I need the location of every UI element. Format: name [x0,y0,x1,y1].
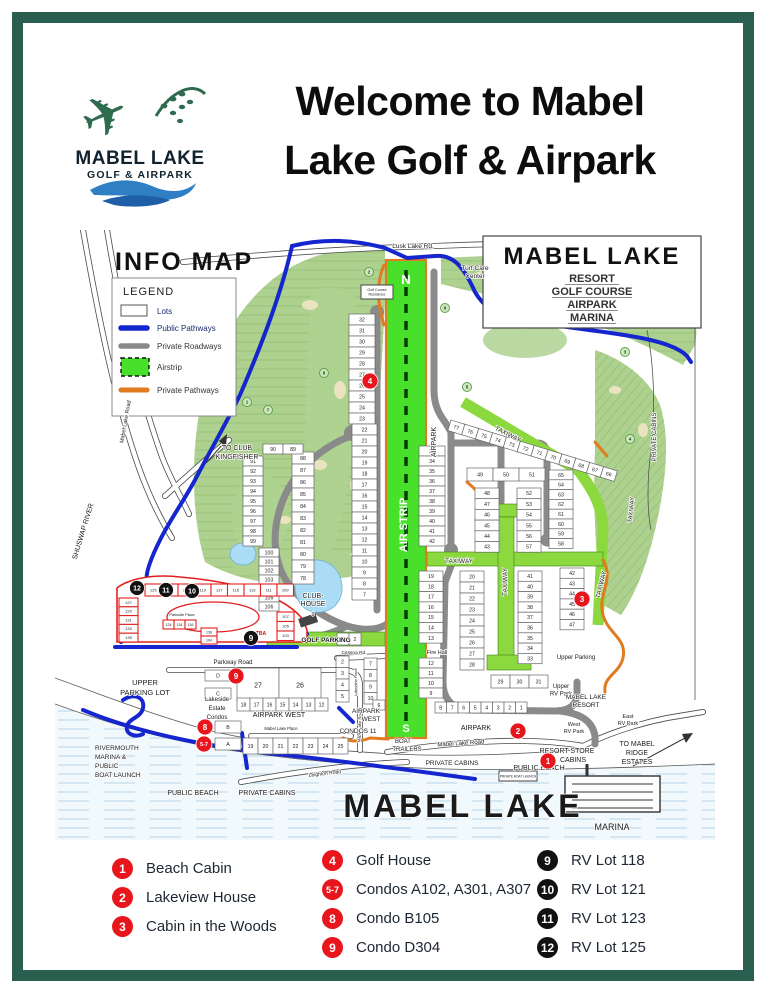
lot-number: 31 [359,328,365,334]
map-marker-number: 3 [580,595,585,604]
lot-number: 29 [498,679,504,685]
footer-legend-col-3: 9RV Lot 11810RV Lot 12111RV Lot 12312RV … [537,846,646,962]
lot-number: 124 [166,623,172,627]
legend-item: 1Beach Cabin [112,854,277,883]
lot-number: 28 [359,361,365,367]
lot-number: 20 [469,574,475,580]
map-label: TO CLUB [222,445,253,452]
lot-number: 59 [558,532,564,538]
map-label: PUBLIC BEACH [167,790,218,797]
lot-number: 57 [526,545,532,551]
map-label: AIRPARK [352,708,381,715]
legend-item-label: RV Lot 125 [571,939,646,956]
lot-number: 4 [485,705,488,711]
lot-number: 20 [263,744,269,750]
lot-number: 22 [362,427,368,433]
legend-item: 2Lakeview House [112,883,277,912]
info-map-title: INFO MAP [115,248,253,276]
page-title: Welcome to Mabel Lake Golf & Airpark [222,72,718,190]
legend-label: Lots [157,307,172,316]
footer-legend-col-1: 1Beach Cabin2Lakeview House3Cabin in the… [112,854,277,941]
lot-number: 93 [250,479,256,485]
legend-item-label: RV Lot 123 [571,910,646,927]
lot-number: 43 [484,545,490,551]
legend-marker-10: 10 [537,879,558,900]
lot-number: 23 [469,607,475,613]
lot-number: 7 [451,705,454,711]
legend-item-label: Condos A102, A301, A307 [356,881,531,898]
map-label: RV Park [564,729,585,735]
lot-number: 16 [362,493,368,499]
lot-number: 46 [484,513,490,519]
legend-marker-4: 4 [322,850,343,871]
map-marker-number: 5-7 [200,742,208,748]
lot-number: 79 [300,564,306,570]
lot-number: 41 [429,529,435,535]
lot-number: 49 [477,472,483,478]
map-label: AIRPARK [461,725,492,732]
lot-number: 34 [429,459,435,465]
logo-subtitle: GOLF & AIRPARK [87,169,193,181]
lot-number: 8 [369,673,372,679]
lot-number: 113 [249,587,256,592]
lot-number: 15 [428,615,434,621]
map-label: Golf Course [367,288,386,292]
map-label: Upper Parking [557,655,595,661]
lot-number: 106 [265,604,274,610]
lot-number: 92 [250,469,256,475]
map-label: BOAT LAUNCH [95,772,141,779]
lot-number: 18 [241,702,247,708]
lot-number: 127 [125,600,132,605]
lot-number: 20 [362,449,368,455]
map-label: PUBLIC [95,763,119,770]
legend-item-label: Beach Cabin [146,860,232,877]
lot-number: 8 [363,581,366,587]
lot-number: 21 [278,744,284,750]
map-label: CABINS [560,757,586,764]
lot-number: 135 [125,635,132,640]
lot-number: 13 [428,636,434,642]
legend-item: 3Cabin in the Woods [112,912,277,941]
lot-number: 98 [250,529,256,535]
lot-number: 30 [517,679,523,685]
lot-number: 41 [527,574,533,580]
lot-number: 3 [497,705,500,711]
map-legend: INFO MAP LEGEND Lots Public Pathways Pri… [112,248,253,416]
map-label: HOUSE [301,601,326,608]
resort-box-line: AIRPARK [567,299,616,311]
logo-airplane-icon: ✈ [72,77,139,154]
lot-number: 15 [280,702,286,708]
map-marker-number: 12 [133,586,141,593]
lot-number: 80 [300,552,306,558]
lot-number: 13 [306,702,312,708]
map-label: Center [465,273,485,280]
legend-marker-1: 1 [112,858,133,879]
map-label: Residence [369,293,386,297]
lot-number: 42 [429,539,435,545]
lot-number: 42 [569,571,575,577]
lot-number: 35 [527,636,533,642]
lot-number: 27 [469,651,475,657]
logo-golf-dots [156,89,205,124]
lot-number: 19 [248,744,254,750]
lot-number: 47 [569,623,575,629]
map-label: ESTATES [622,759,653,766]
map-label: N [401,272,410,287]
map-marker-number: 8 [203,723,208,732]
lot-number: 87 [300,468,306,474]
lot-number: 34 [527,646,533,652]
map-label: RIVERMOUTH [95,745,139,752]
lot-number: 103 [282,633,289,638]
lot-number: 25 [359,394,365,400]
map-label: MABEL LAKE [343,788,582,824]
lot-number: 6 [462,705,465,711]
legend-label: Airstrip [157,363,182,372]
lot-number: 14 [428,626,434,632]
lot-number: 22 [293,744,299,750]
map-label: AIRPARK [431,427,438,458]
lot-number: 133 [125,626,132,631]
legend-marker-9: 9 [322,937,343,958]
lot-number: 33 [527,656,533,662]
legend-label: Private Pathways [157,386,219,395]
lot-number: 38 [527,605,533,611]
lot-number: 61 [558,512,564,518]
legend-marker-3: 3 [112,916,133,937]
map-marker-number: 4 [368,377,373,386]
map-label: West [568,722,581,728]
lot-number: 35 [429,469,435,475]
lot-number: 22 [469,596,475,602]
lot-number: 51 [529,472,535,478]
lot-number: 103 [265,577,274,583]
lot-number: 55 [526,523,532,529]
lot-number: 25 [338,744,344,750]
lot-number: 43 [569,581,575,587]
map-label: SHUSWAP RIVER [72,503,96,561]
lot-number: 4 [341,683,344,689]
lot-number: 38 [429,499,435,505]
resort-title-box: MABEL LAKE RESORT GOLF COURSE AIRPARK MA… [483,236,701,328]
svg-text:✈: ✈ [72,77,139,154]
lot-number: 32 [359,317,365,323]
lot-number: 23 [359,416,365,422]
legend-item-label: RV Lot 121 [571,881,646,898]
lot-number: 2 [508,705,511,711]
map-label: TAXIWAY [502,567,509,596]
lot-number: 11 [362,548,367,554]
lot-number: 46 [569,612,575,618]
lot-number: 17 [428,595,434,601]
lot-number: 26 [469,640,475,646]
lot-number: 2 [354,637,357,643]
lot-number: 96 [250,509,256,515]
logo: ✈ MABEL LAKE GOLF & AIRPARK [72,58,208,208]
lot-number: 45 [569,602,575,608]
map-label: RESORT [573,702,600,709]
legend-title: LEGEND [123,286,174,298]
lot-number: 89 [290,447,296,453]
map-label: CONDOS 11 [339,728,376,735]
lot-number: 62 [558,502,564,508]
map-label: TAXIWAY [445,558,474,565]
lot-number: 21 [362,438,368,444]
lot-number: 14 [293,702,299,708]
legend-item-label: RV Lot 118 [571,852,645,869]
lot-number: 105 [282,624,289,629]
map-label: Estate [208,706,226,712]
map-label: Lusk Lake Rd. [392,243,434,250]
lot-number: B [226,725,230,731]
legend-swatch-airstrip [121,358,149,376]
lot-number: 28 [469,662,475,668]
map-label: PRIVATE BOAT LAUNCH [500,775,537,779]
lot-number: 10 [368,696,374,702]
lot-number: 3 [341,671,344,677]
lot-number: 47 [484,502,490,508]
lot-number: 116 [188,623,194,627]
lot-number: 37 [527,615,533,621]
map-label: UPPER [132,678,158,687]
lot-number: 97 [250,519,256,525]
lot-number: 19 [428,574,434,580]
lot-number: 12 [362,537,368,543]
lot-number: 100 [265,550,274,556]
map-label: Fire Hall [427,650,447,656]
lot-number: 44 [484,534,490,540]
map-label: AIR STRIP [398,498,410,552]
lot-number: 78 [300,576,306,582]
legend-item: 5-7Condos A102, A301, A307 [322,875,531,904]
map-label: PRIVATE CABINS [426,760,480,767]
lot-number: 48 [484,491,490,497]
lot-number: 36 [527,626,533,632]
lot-number: 118 [177,623,183,627]
lot-number: 52 [526,491,532,497]
lot-number: 85 [300,492,306,498]
lot-number: 129 [125,609,132,614]
map-marker-number: 10 [188,589,196,596]
map-label: 9 [311,612,314,618]
lot-number: 117 [216,587,223,592]
lot-number: 95 [250,499,256,505]
lot-number: 19 [362,460,368,466]
map-label: Mabel Lake Road [437,739,484,748]
legend-item-label: Lakeview House [146,889,256,906]
lot-number: 65 [558,473,564,479]
legend-label: Private Roadways [157,342,221,351]
lot-number: 26 [296,683,304,690]
map-label: Turf Care [461,265,489,272]
map-label: S [402,723,409,735]
map-label: Parkside Place [169,613,194,617]
map-label: GOLF PARKING [301,637,350,644]
legend-item: 9Condo D304 [322,933,531,962]
map-label: Upper [553,684,569,690]
legend-swatch-lots [121,305,147,316]
lot-number: 109 [282,587,289,592]
resort-box-line: MARINA [570,312,614,324]
map-label: RV Park [618,721,639,727]
lot-number: 13 [362,526,368,532]
lot-number: 94 [250,489,256,495]
legend-item: 10RV Lot 121 [537,875,646,904]
lot-number: 30 [359,339,365,345]
map-label: PARKING LOT [120,688,170,697]
lot-number: 39 [429,509,435,515]
lot-number: 9 [369,685,372,691]
lot-number: 63 [558,492,564,498]
logo-name: MABEL LAKE [75,148,204,169]
legend-item-label: Condo B105 [356,910,439,927]
lot-number: 7 [369,662,372,668]
lot-number: 86 [300,480,306,486]
lot-number: 12 [319,702,325,708]
map-label: BOAT [395,739,411,745]
legend-marker-8: 8 [322,908,343,929]
map-marker-number: 11 [162,588,170,595]
lot-number: 53 [526,502,532,508]
lot-number: 9 [430,691,433,697]
map-label: CLUB- [302,593,324,600]
legend-marker-9: 9 [537,850,558,871]
legend-item-label: Golf House [356,852,431,869]
lot-number: 115 [233,587,240,592]
lot-number: 40 [429,519,435,525]
lot-number: 39 [527,595,533,601]
clubhouse-building [298,613,318,627]
map-label: WEST [362,716,381,723]
legend-item: 8Condo B105 [322,904,531,933]
lot-number: 14 [362,515,368,521]
lot-number: 81 [300,540,306,546]
map-label: AIRPARK WEST [253,712,306,719]
lot-number: 107 [282,614,289,619]
lot-number: 131 [125,617,132,622]
footer-legend-col-2: 4Golf House5-7Condos A102, A301, A3078Co… [322,846,531,962]
lot-number: 5 [341,694,344,700]
map-label: TRAILERS [392,747,421,753]
lot-number: 111 [266,587,273,592]
lot-number: 8 [439,705,442,711]
lot-number: 45 [484,523,490,529]
map-marker-number: 2 [516,727,521,736]
legend-marker-12: 12 [537,937,558,958]
lot-number: 125 [150,587,157,592]
legend-label: Public Pathways [157,324,216,333]
lot-number: 102 [265,568,274,574]
lot-number: 12 [428,661,434,667]
lot-number: 88 [300,456,306,462]
lot-number: 40 [527,584,533,590]
map-label: MARINA & [95,754,127,761]
lot-number: 1 [520,705,523,711]
lot-number: 25 [469,629,475,635]
legend-item: 11RV Lot 123 [537,904,646,933]
lot-number: 136 [206,630,212,634]
lot-number: 101 [265,559,274,565]
lot-number: 31 [536,679,542,685]
resort-box-title: MABEL LAKE [504,243,681,270]
lot-number: 5 [474,705,477,711]
lot-number: 11 [428,671,433,677]
lot-number: 90 [270,447,276,453]
map-label: Lakeside [205,697,230,703]
resort-box-line: GOLF COURSE [552,286,633,298]
lot-number: 99 [250,539,256,545]
legend-item: 12RV Lot 125 [537,933,646,962]
map-label: MABEL LAKE [566,694,607,701]
map-label: KINGFISHER [216,454,259,461]
lot-number: 21 [469,585,475,591]
resort-box-line: RESORT [569,273,615,285]
map-label: Lakeview Place [353,667,358,696]
lot-number: 58 [558,541,564,547]
map-label: Parkway Road [213,660,252,666]
legend-marker-11: 11 [537,908,558,929]
map-label: PUBLIC BEACH [513,765,564,772]
legend-item: 4Golf House [322,846,531,875]
lot-number: A [226,742,230,748]
lot-number: 29 [359,350,365,356]
legend-item-label: Condo D304 [356,939,440,956]
lot-number: 24 [359,405,365,411]
logo-wave-icon [90,180,196,206]
lot-number: 83 [300,516,306,522]
map-label: PRIVATE CABINS [652,413,658,462]
legend-item-label: Cabin in the Woods [146,918,277,935]
lot-number: 56 [526,534,532,540]
lot-number: 64 [558,483,564,489]
map-label: MARINA [594,822,629,832]
lot-number: 60 [558,522,564,528]
lot-number: 7 [363,592,366,598]
lot-number: 16 [428,605,434,611]
lot-number: 24 [469,618,475,624]
lot-number: 119 [200,587,207,592]
lot-number: 10 [362,559,368,565]
lot-number: 104 [206,638,212,642]
map-label: TO MABEL [619,741,654,748]
lot-number: 36 [429,479,435,485]
map-marker-number: 9 [249,634,254,643]
lot-number: 50 [503,472,509,478]
lot-number: 27 [254,683,262,690]
lot-number: 9 [363,570,366,576]
lot-number: 18 [428,584,434,590]
lot-number: 23 [308,744,314,750]
map-marker-number: 1 [546,757,551,766]
lot-number: 24 [323,744,329,750]
lot-number: 82 [300,528,306,534]
map-marker-number: 9 [234,672,239,681]
lot-number: D [216,673,220,679]
map-label: East [622,714,633,720]
map-label: RIDGE [626,750,649,757]
lot-number: 10 [428,681,434,687]
map-label: Cessna Rd. [341,650,366,656]
page-title-line2: Lake Golf & Airpark [222,131,718,190]
lot-number: 16 [267,702,273,708]
lot-number: 17 [254,702,260,708]
legend-marker-2: 2 [112,887,133,908]
info-map: 3231302928272625242322212019181716151413… [55,230,715,840]
legend-marker-5-7: 5-7 [322,879,343,900]
lot-number: 84 [300,504,306,510]
